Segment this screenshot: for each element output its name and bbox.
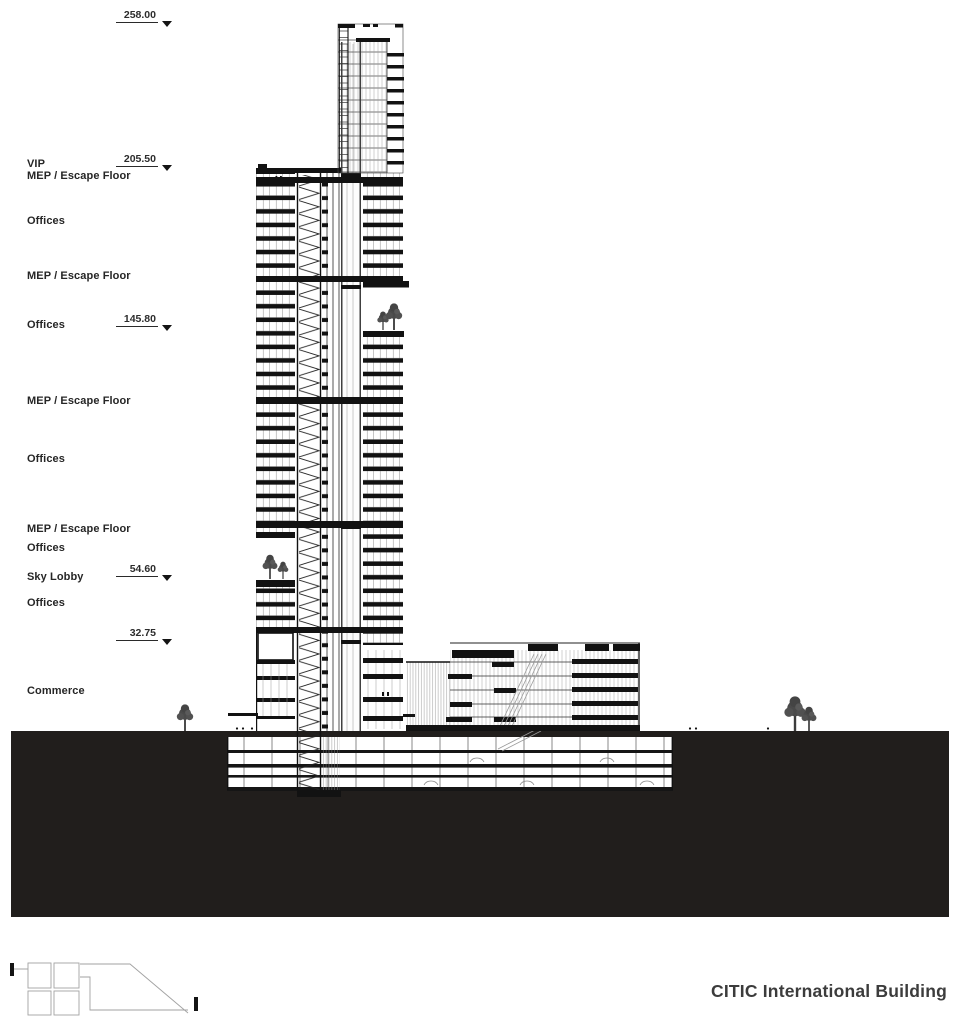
floor-label-mep-3: MEP / Escape Floor (27, 395, 131, 407)
elevation-marker-32: 32.75 (116, 627, 172, 641)
floor-label-sky-lobby: Sky Lobby (27, 571, 84, 583)
elevation-value: 145.80 (116, 313, 158, 327)
floor-label-offices-4: Offices (27, 542, 65, 554)
section-cut-mark-left (10, 963, 14, 976)
tower-base-right (363, 645, 403, 731)
tree-icon (177, 704, 193, 731)
floor-label-offices-2: Offices (27, 319, 65, 331)
elevation-marker-205: 205.50 (116, 153, 172, 167)
floor-label-mep-4: MEP / Escape Floor (27, 523, 131, 535)
floor-label-offices-5: Offices (27, 597, 65, 609)
elevation-value: 54.60 (116, 563, 158, 577)
level-triangle-icon (162, 21, 172, 27)
floor-label-mep-1: MEP / Escape Floor (27, 170, 131, 182)
floor-label-offices-3: Offices (27, 453, 65, 465)
drawing-title: CITIC International Building (711, 981, 947, 1002)
section-cut-mark-right (194, 997, 198, 1011)
tower-base-left (256, 630, 295, 731)
elevation-marker-258: 258.00 (116, 9, 172, 23)
sky-garden-right (363, 281, 409, 337)
tree-icon (784, 696, 805, 731)
floor-label-mep-2: MEP / Escape Floor (27, 270, 131, 282)
key-plan (10, 963, 198, 1015)
elevation-value: 205.50 (116, 153, 158, 167)
level-triangle-icon (162, 639, 172, 645)
elevation-marker-54: 54.60 (116, 563, 172, 577)
floor-label-vip: VIP (27, 158, 45, 170)
spire-section (338, 24, 404, 173)
level-triangle-icon (162, 575, 172, 581)
level-triangle-icon (162, 165, 172, 171)
floor-label-commerce: Commerce (27, 685, 85, 697)
podium-section (406, 643, 640, 731)
floor-label-offices-1: Offices (27, 215, 65, 227)
basement (227, 729, 673, 791)
level-triangle-icon (162, 325, 172, 331)
sky-garden-left (256, 532, 295, 587)
elevation-value: 32.75 (116, 627, 158, 641)
section-drawing-page: VIP MEP / Escape Floor Offices MEP / Esc… (0, 0, 956, 1024)
elevation-marker-145: 145.80 (116, 313, 172, 327)
elevation-value: 258.00 (116, 9, 158, 23)
